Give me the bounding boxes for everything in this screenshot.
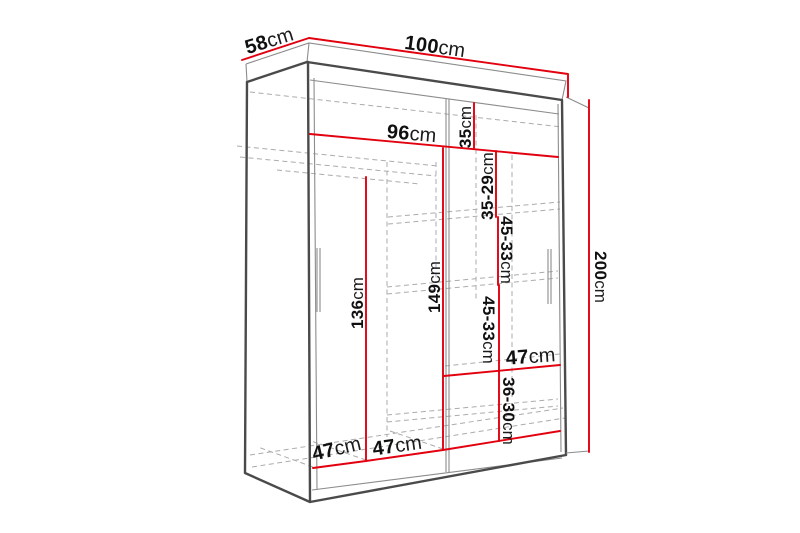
left-door-handle (317, 248, 320, 312)
extension-line-top-right (566, 97, 589, 108)
dim-width-label: 100cm (403, 32, 466, 62)
extension-line-bottom-right (566, 451, 589, 453)
wardrobe-dimension-diagram: 58cm 100cm 96cm 35cm 35-29cm 45-33cm 45-… (0, 0, 800, 533)
dim-interior-width-label: 96cm (386, 121, 437, 147)
dim-bottom-left-47-label: 47cm (310, 433, 363, 466)
dim-gap-35-29-label: 35-29cm (478, 152, 497, 220)
right-door-handle (548, 249, 551, 304)
top-track-line (310, 80, 559, 114)
dim-gap-45-33-upper-label: 45-33cm (497, 216, 516, 284)
dim-shelf-width-47-label: 47cm (505, 344, 556, 369)
dim-gap-45-33-lower-label: 45-33cm (479, 296, 498, 364)
dimension-labels: 58cm 100cm 96cm 35cm 35-29cm 45-33cm 45-… (242, 24, 610, 466)
dim-gap-36-30-label: 36-30cm (499, 377, 518, 445)
dimension-lines (242, 38, 589, 468)
dim-height-136-label: 136cm (348, 277, 367, 329)
dim-depth-label: 58cm (242, 24, 296, 60)
dim-height-200-label: 200cm (591, 251, 610, 303)
dim-top-shelf-label: 35cm (456, 106, 475, 148)
dim-height-149-label: 149cm (425, 261, 444, 313)
